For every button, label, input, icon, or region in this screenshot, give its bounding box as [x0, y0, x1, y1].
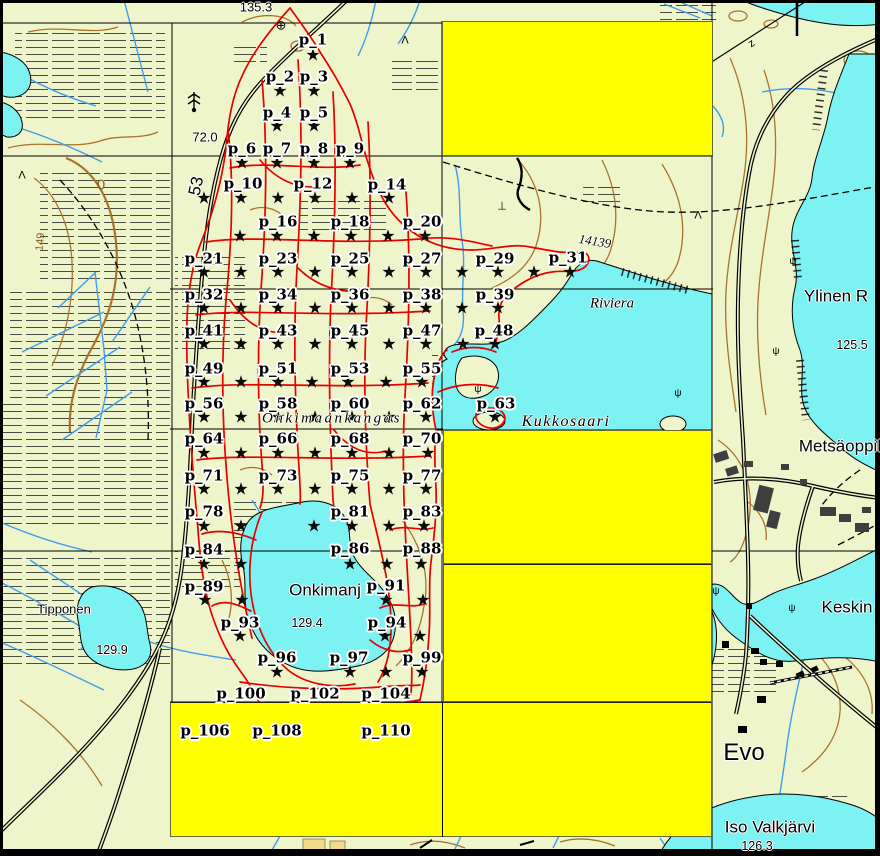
map-text-label: Metsäoppil	[799, 438, 880, 455]
point-label[interactable]: p_93	[221, 616, 260, 631]
map-text-label: Λ	[18, 171, 25, 182]
map-text-label: 72.0	[192, 131, 217, 144]
point-label[interactable]: p_53	[331, 362, 370, 377]
map-text-label: ψ	[674, 389, 681, 399]
map-text-label: ψ	[788, 604, 795, 614]
map-text-label: Onkimanj	[289, 582, 361, 599]
point-label[interactable]: p_84	[185, 543, 224, 558]
map-text-label: 135.3	[240, 1, 273, 14]
point-label[interactable]: p_14	[368, 178, 407, 193]
point-label[interactable]: p_27	[403, 252, 442, 267]
point-label[interactable]: p_89	[185, 580, 224, 595]
point-label[interactable]: p_81	[331, 505, 370, 520]
map-text-label: 129.9	[96, 644, 127, 657]
point-label[interactable]: p_75	[331, 469, 370, 484]
map-text-label: ψ	[474, 385, 481, 395]
map-text-label: 0	[97, 178, 105, 193]
point-label[interactable]: p_20	[403, 215, 442, 230]
map-text-label: ⊕	[276, 19, 287, 32]
point-label[interactable]: p_51	[259, 362, 298, 377]
point-label[interactable]: p_62	[403, 397, 442, 412]
map-text-label: 53	[186, 175, 207, 197]
map-text-label: ⊥	[497, 202, 507, 213]
map-text-label: Kukkosaari	[522, 414, 611, 430]
point-label[interactable]: p_88	[403, 542, 442, 557]
point-label[interactable]: p_2	[266, 70, 294, 85]
map-canvas[interactable]: ★★★★★★★★★★★★★★★★★★★★★★★★★★★★★★★★★★★★★★★★…	[0, 0, 880, 856]
map-text-label: Onkimaankangas	[262, 412, 402, 427]
point-label[interactable]: p_102	[290, 687, 339, 702]
point-label[interactable]: p_5	[300, 106, 328, 121]
map-text-label: 129.4	[291, 617, 322, 630]
map-text-label: Tipponen	[37, 603, 91, 616]
point-label[interactable]: p_18	[331, 215, 370, 230]
point-label[interactable]: p_29	[476, 252, 515, 267]
point-label[interactable]: p_58	[259, 397, 298, 412]
point-label[interactable]: p_34	[259, 288, 298, 303]
point-label[interactable]: p_23	[259, 252, 298, 267]
map-text-label: 126.3	[741, 840, 772, 853]
map-text-label: Riviera	[590, 297, 634, 312]
map-text-label: Keskin	[821, 599, 872, 616]
map-text-label: Λ	[694, 211, 701, 222]
point-label[interactable]: p_64	[185, 432, 224, 447]
point-label[interactable]: p_32	[185, 288, 224, 303]
point-label[interactable]: p_38	[403, 288, 442, 303]
point-label[interactable]: p_31	[549, 251, 588, 266]
map-text-label: z	[747, 38, 758, 50]
point-label[interactable]: p_4	[263, 106, 291, 121]
point-label[interactable]: p_56	[185, 397, 224, 412]
point-label[interactable]: p_86	[331, 542, 370, 557]
point-label[interactable]: p_36	[331, 288, 370, 303]
point-label[interactable]: p_66	[259, 432, 298, 447]
map-text-label: ψ	[772, 347, 779, 357]
point-label[interactable]: p_55	[403, 362, 442, 377]
point-label[interactable]: p_71	[185, 469, 224, 484]
map-text-label: 125.5	[836, 339, 867, 352]
point-label[interactable]: p_99	[403, 651, 442, 666]
point-label[interactable]: p_10	[224, 177, 263, 192]
point-label[interactable]: p_91	[367, 579, 406, 594]
point-label[interactable]: p_97	[330, 651, 369, 666]
point-label[interactable]: p_3	[300, 70, 328, 85]
point-label[interactable]: p_100	[216, 687, 265, 702]
point-label[interactable]: p_77	[403, 469, 442, 484]
point-label[interactable]: p_25	[331, 252, 370, 267]
point-label[interactable]: p_16	[259, 215, 298, 230]
point-label[interactable]: p_96	[258, 651, 297, 666]
point-label[interactable]: p_8	[300, 142, 328, 157]
point-label[interactable]: p_39	[476, 288, 515, 303]
map-text-label: ψ	[712, 587, 719, 597]
point-label[interactable]: p_94	[368, 616, 407, 631]
point-label[interactable]: p_106	[180, 724, 229, 739]
point-label[interactable]: p_60	[331, 397, 370, 412]
point-label[interactable]: p_41	[185, 324, 224, 339]
labels-layer: p_1p_2p_3p_4p_5p_6p_7p_8p_9p_10p_12p_14p…	[0, 0, 880, 856]
point-label[interactable]: p_43	[259, 324, 298, 339]
map-text-label: Iso Valkjärvi	[725, 819, 815, 836]
point-label[interactable]: p_63	[477, 397, 516, 412]
point-label[interactable]: p_48	[475, 324, 514, 339]
point-label[interactable]: p_49	[185, 362, 224, 377]
map-text-label: 14139	[578, 232, 612, 250]
point-label[interactable]: p_78	[185, 505, 224, 520]
point-label[interactable]: p_47	[403, 324, 442, 339]
point-label[interactable]: p_110	[361, 724, 410, 739]
point-label[interactable]: p_104	[361, 687, 410, 702]
map-text-label: Evo	[723, 741, 764, 765]
point-label[interactable]: p_70	[403, 432, 442, 447]
point-label[interactable]: p_68	[331, 432, 370, 447]
map-text-label: ψ	[789, 257, 796, 267]
point-label[interactable]: p_6	[228, 142, 256, 157]
map-text-label: Λ	[401, 36, 408, 47]
map-text-label: 149	[35, 232, 48, 251]
point-label[interactable]: p_45	[331, 324, 370, 339]
point-label[interactable]: p_73	[259, 469, 298, 484]
point-label[interactable]: p_108	[252, 724, 301, 739]
point-label[interactable]: p_7	[263, 142, 291, 157]
point-label[interactable]: p_9	[336, 142, 364, 157]
point-label[interactable]: p_12	[294, 177, 333, 192]
point-label[interactable]: p_1	[299, 33, 327, 48]
point-label[interactable]: p_21	[185, 252, 224, 267]
map-text-label: Ylinen R	[804, 288, 868, 305]
point-label[interactable]: p_83	[403, 505, 442, 520]
